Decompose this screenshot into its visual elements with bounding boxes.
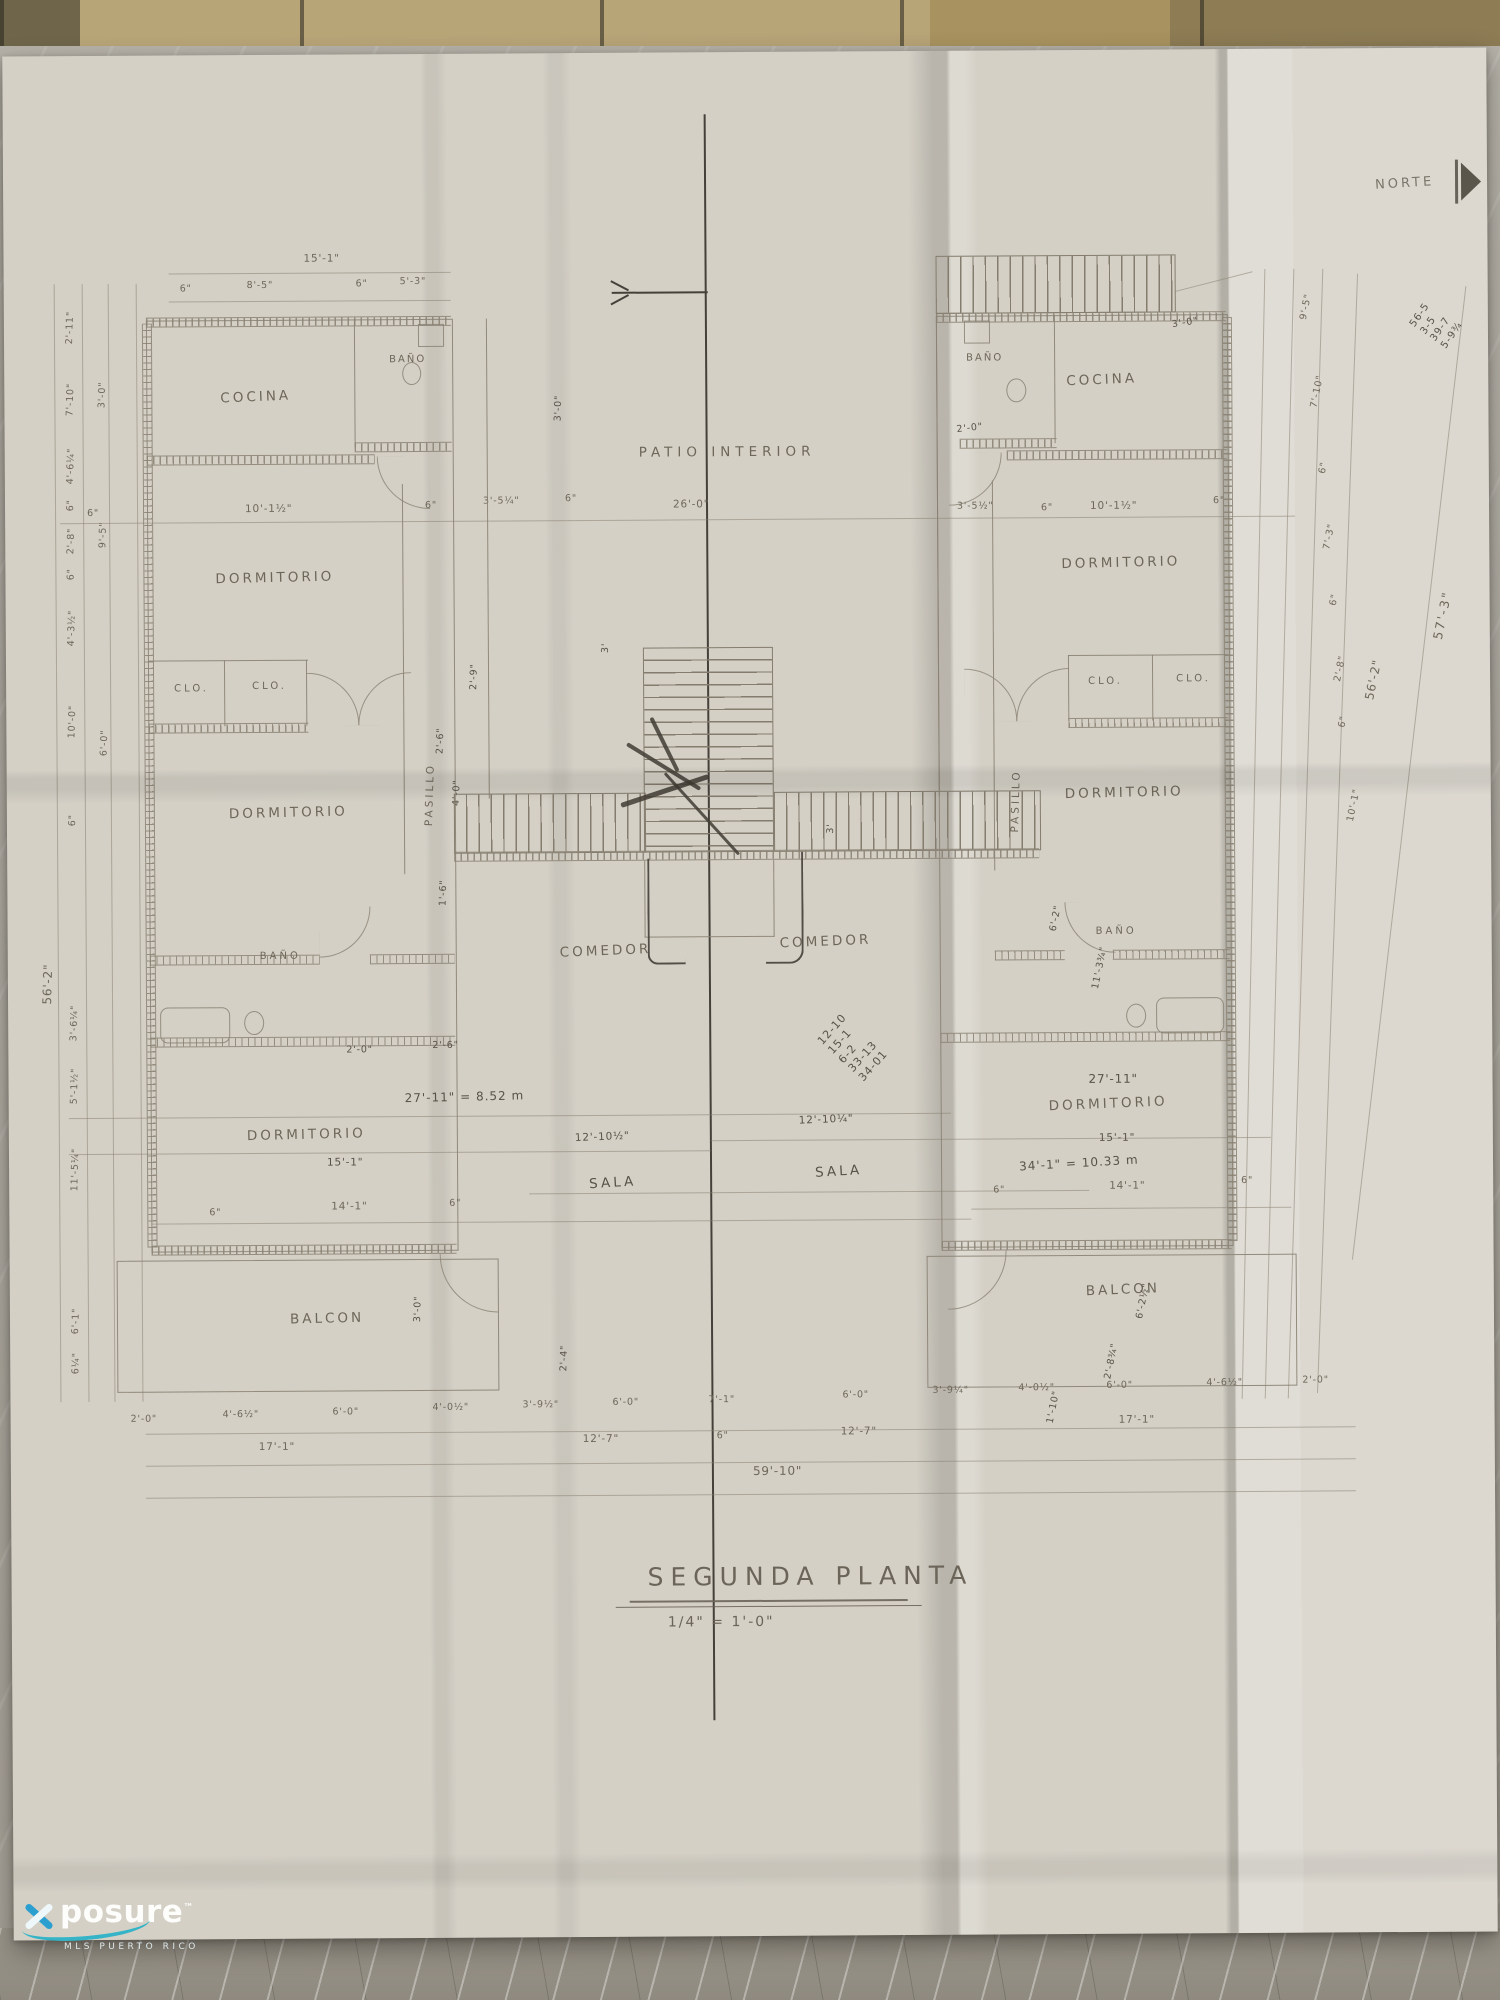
wall: [152, 1244, 457, 1256]
dim-label: 2'-8": [65, 528, 77, 555]
dim-line-bottom3: [146, 1490, 1356, 1499]
dim-label: 6": [425, 500, 437, 511]
north-label: NORTE: [1375, 174, 1435, 192]
width-note-left: 27'-11" = 8.52 m: [404, 1088, 524, 1106]
dim-label: 6'-0": [842, 1389, 869, 1400]
plan-title: SEGUNDA PLANTA: [647, 1561, 973, 1592]
pencil-arrow-line: [612, 291, 708, 294]
dim-label-top-total: 15'-1": [303, 252, 339, 264]
room-label-dormitorio3-left: DORMITORIO: [247, 1125, 366, 1144]
dim-label-width-right: 27'-11": [1088, 1072, 1137, 1086]
left-chain-line: [82, 284, 90, 1402]
dim-label-total-right: 57'-3": [1430, 589, 1455, 641]
dim-label: 10'-1½": [245, 503, 292, 515]
wall: [940, 1031, 1230, 1043]
dim-label: 6": [180, 283, 192, 294]
room-label-bano2-right: BAÑO: [1096, 926, 1137, 937]
dim-label: 7'-10": [64, 383, 76, 417]
north-arrow-icon: [1461, 163, 1481, 201]
right-chain-line: [1317, 274, 1358, 1393]
right-top-striped-band: [935, 254, 1175, 313]
dim-label: 17'-1": [1119, 1414, 1155, 1426]
tile-backsplash: [0, 0, 1500, 46]
toilet-fixture: [1006, 378, 1026, 402]
right-chain-line: [1288, 269, 1324, 1399]
dim-label-sala-right: 12'-10¼": [799, 1112, 854, 1126]
dim-label: 6": [565, 493, 577, 504]
room-label-sala-left: SALA: [589, 1173, 637, 1192]
dim-label: 3'-0": [412, 1296, 424, 1323]
dim-label: 7'-1": [708, 1394, 735, 1405]
dim-label: 5'-3": [400, 276, 427, 287]
dim-label: 1'-6": [437, 879, 449, 906]
dim-label: 3'-5¼": [483, 495, 520, 506]
room-label-dormitorio1-left: DORMITORIO: [215, 568, 334, 587]
left-top-wall: [146, 316, 451, 328]
dim-label: 14'-1": [331, 1200, 367, 1212]
dim-label: 4'-0½": [432, 1402, 469, 1413]
toilet-fixture: [244, 1011, 264, 1035]
dim-label: 2'-4": [558, 1345, 570, 1372]
wall: [148, 723, 308, 734]
right-chain-line: [1265, 269, 1295, 1399]
dim-label: 4'-6½": [223, 1409, 260, 1420]
room-label-bano-top-right: BAÑO: [966, 352, 1003, 363]
room-label-balcon-left: BALCON: [290, 1310, 365, 1328]
wall: [1068, 717, 1228, 728]
room-label-dormitorio1-right: DORMITORIO: [1061, 553, 1180, 572]
blueprint-paper: 2'-11" 7'-10" 3'-0" 4'-6¼" 6" 2'-8" 9'-5…: [2, 47, 1497, 1940]
handwritten-sum-note: 12-10 15-1 6-2 33-13 34-01: [815, 1011, 891, 1084]
dim-label: 6": [87, 508, 99, 519]
room-label-sala-right: SALA: [815, 1162, 863, 1181]
dim-label-total-left: 56'-2": [40, 963, 55, 1004]
dim-label: 6": [1336, 715, 1349, 729]
dim-label: 17'-1": [259, 1441, 295, 1453]
room-label-bano2-left: BAÑO: [260, 951, 301, 962]
dim-label: 2'-0": [131, 1414, 158, 1425]
room-label-cocina-right: COCINA: [1066, 370, 1137, 389]
patio-wall-left: [486, 319, 490, 799]
dim-label: 9'-5": [1298, 293, 1314, 321]
dim-label: 6": [449, 1198, 461, 1209]
dim-label: 3'-0": [552, 395, 564, 422]
dim-line-bottom2: [146, 1458, 1356, 1467]
dim-label: 6'-1": [70, 1308, 82, 1335]
dim-label: 2'-6": [432, 1040, 459, 1051]
dim-line: [169, 272, 451, 275]
wall: [150, 1036, 455, 1048]
dim-label: 3'-9½": [522, 1399, 559, 1410]
wall: [147, 454, 375, 465]
wall: [942, 1239, 1232, 1251]
photo-of-blueprint: { "photo": { "surface": "marble countert…: [0, 0, 1500, 2000]
dim-label: 4'-0½": [1018, 1382, 1055, 1393]
room-label-closet2-right: CLO.: [1176, 673, 1211, 684]
dim-label: 6": [1317, 461, 1330, 475]
dim-label: 10'-1": [1345, 788, 1363, 823]
dim-label: 7'-10": [1308, 374, 1326, 409]
dim-label: 3'-0": [96, 381, 108, 408]
bathtub-fixture: [1156, 997, 1224, 1033]
wall: [370, 954, 455, 965]
right-chain-line: [1242, 269, 1266, 1399]
title-underline: [630, 1599, 908, 1603]
dim-label: 6": [65, 499, 76, 511]
dim-label: 6": [67, 814, 78, 826]
stair-run-left: [454, 793, 646, 854]
toilet-fixture: [1126, 1004, 1146, 1028]
dim-label: 1'-10": [1045, 1390, 1063, 1425]
north-arrow-bar: [1455, 160, 1458, 204]
dim-label: 6": [356, 278, 368, 289]
room-label-closet1-left: CLO.: [174, 683, 209, 694]
dim-label: 6'-0": [99, 729, 111, 756]
sink-fixture: [964, 321, 990, 344]
pencil-arrow-curve: [647, 858, 686, 964]
dim-label: 6'-0": [612, 1397, 639, 1408]
dim-label-sala-left: 12'-10½": [575, 1130, 630, 1144]
dim-label-patio-width: 26'-0": [673, 498, 709, 510]
dim-label: 4'-6¼": [65, 448, 77, 485]
room-label-pasillo-left: PASILLO: [423, 763, 437, 827]
dim-label: 3'-6¼": [68, 1005, 80, 1042]
left-chain-line: [54, 284, 62, 1402]
handwritten-sum-note-right: 56-5 3-5 39-7 5-9¾: [1408, 298, 1466, 351]
wall: [960, 438, 1057, 449]
wall: [1007, 449, 1227, 460]
left-chain-line: [108, 284, 116, 1402]
dim-label: 2'-9": [468, 663, 480, 690]
dim-label: 7'-3": [1321, 523, 1337, 551]
plan-scale: 1/4" = 1'-0": [668, 1614, 775, 1631]
patio-label: PATIO INTERIOR: [639, 444, 816, 461]
dim-label: 6": [717, 1430, 729, 1441]
watermark: posure™ MLS PUERTO RICO: [14, 1886, 244, 1976]
dim-label: 2'-0": [346, 1044, 373, 1055]
dim-line-bottom1: [146, 1426, 1356, 1435]
room-label-dormitorio2-right: DORMITORIO: [1065, 783, 1184, 802]
dim-label: 10'-0": [66, 705, 78, 739]
toilet-fixture: [402, 362, 421, 385]
dim-label-total-bottom: 59'-10": [753, 1464, 802, 1478]
dim-label: 9'-5": [97, 521, 109, 548]
dim-label: 6": [1328, 593, 1341, 607]
title-underline-2: [616, 1605, 922, 1608]
wall: [995, 950, 1065, 960]
dim-label: 12'-7": [583, 1433, 619, 1445]
dim-label: 2'-8": [1332, 654, 1348, 682]
room-label-comedor-right: COMEDOR: [779, 932, 871, 952]
watermark-tagline: MLS PUERTO RICO: [64, 1942, 199, 1952]
wall: [355, 442, 452, 453]
right-chain-diagonal: [1352, 286, 1467, 1260]
dim-label: 15'-1": [1099, 1132, 1135, 1144]
sink-fixture: [418, 324, 444, 347]
dim-label: 2'-6": [435, 727, 447, 754]
dim-label: 2'-0": [1302, 1374, 1329, 1385]
room-label-pasillo-right: PASILLO: [1009, 769, 1023, 833]
dim-label: 6": [65, 568, 76, 580]
dim-label: 3'-9¼": [932, 1385, 969, 1396]
dim-label: 4'-3½": [66, 610, 78, 647]
dim-label: 14'-1": [1109, 1180, 1145, 1192]
room-label-dormitorio2-left: DORMITORIO: [229, 803, 348, 822]
room-label-closet1-right: CLO.: [1088, 676, 1123, 687]
room-label-closet2-left: CLO.: [252, 681, 287, 692]
stair-dim-top: 3': [600, 643, 611, 654]
room-label-comedor-left: COMEDOR: [559, 941, 651, 961]
dim-label: 2'-11": [64, 311, 76, 345]
dim-label: 15'-1": [327, 1156, 363, 1168]
dim-label: 56'-2": [1362, 658, 1384, 701]
room-label-cocina-left: COCINA: [220, 388, 291, 407]
dim-label: 6'-0": [1106, 1380, 1133, 1391]
dim-label: 8'-5": [247, 280, 274, 291]
pencil-arrow-head: [610, 280, 629, 291]
dim-label: 5'-1½": [69, 1068, 81, 1105]
dim-label: 6¼": [70, 1352, 82, 1374]
dim-line: [169, 300, 451, 303]
wall: [1113, 949, 1230, 960]
dim-label: 4'-6½": [1206, 1377, 1243, 1388]
stair-dim-right: 3': [825, 823, 836, 834]
dim-label: 12'-7": [841, 1425, 877, 1437]
pencil-arrow-head: [610, 294, 629, 305]
entry-line: [1175, 271, 1253, 292]
trademark-symbol: ™: [183, 1903, 194, 1914]
dim-label: 6'-0": [333, 1406, 360, 1417]
dim-label: 6": [209, 1207, 221, 1218]
dim-label: 6": [993, 1184, 1005, 1195]
